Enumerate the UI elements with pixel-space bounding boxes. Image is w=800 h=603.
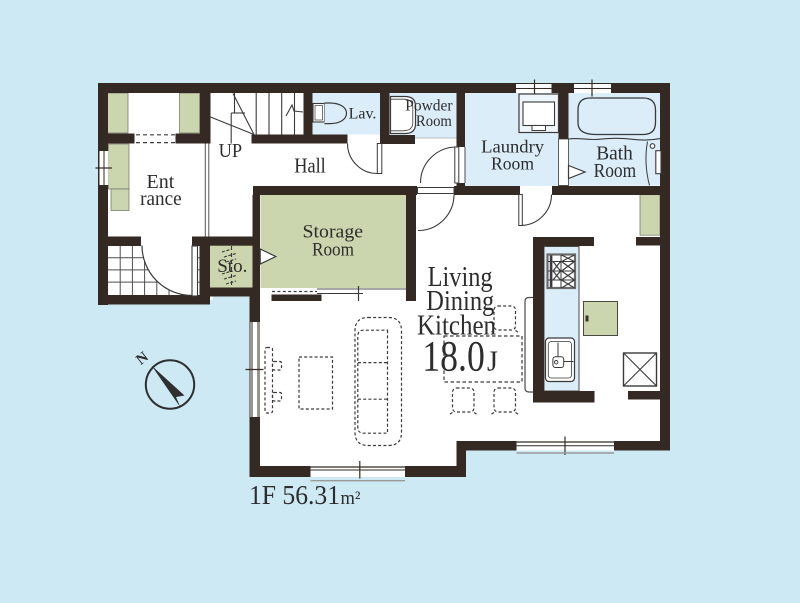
svg-text:Room: Room bbox=[416, 113, 453, 130]
svg-text:J: J bbox=[487, 347, 498, 378]
svg-text:Hall: Hall bbox=[294, 154, 326, 178]
svg-text:Room: Room bbox=[491, 154, 534, 174]
svg-text:18.0: 18.0 bbox=[422, 334, 485, 381]
svg-text:Room: Room bbox=[594, 160, 637, 182]
svg-text:Sto.: Sto. bbox=[217, 256, 247, 277]
svg-text:rance: rance bbox=[140, 188, 182, 210]
svg-text:Lav.: Lav. bbox=[349, 106, 377, 123]
svg-text:UP: UP bbox=[219, 140, 243, 162]
svg-text:Room: Room bbox=[312, 240, 354, 261]
